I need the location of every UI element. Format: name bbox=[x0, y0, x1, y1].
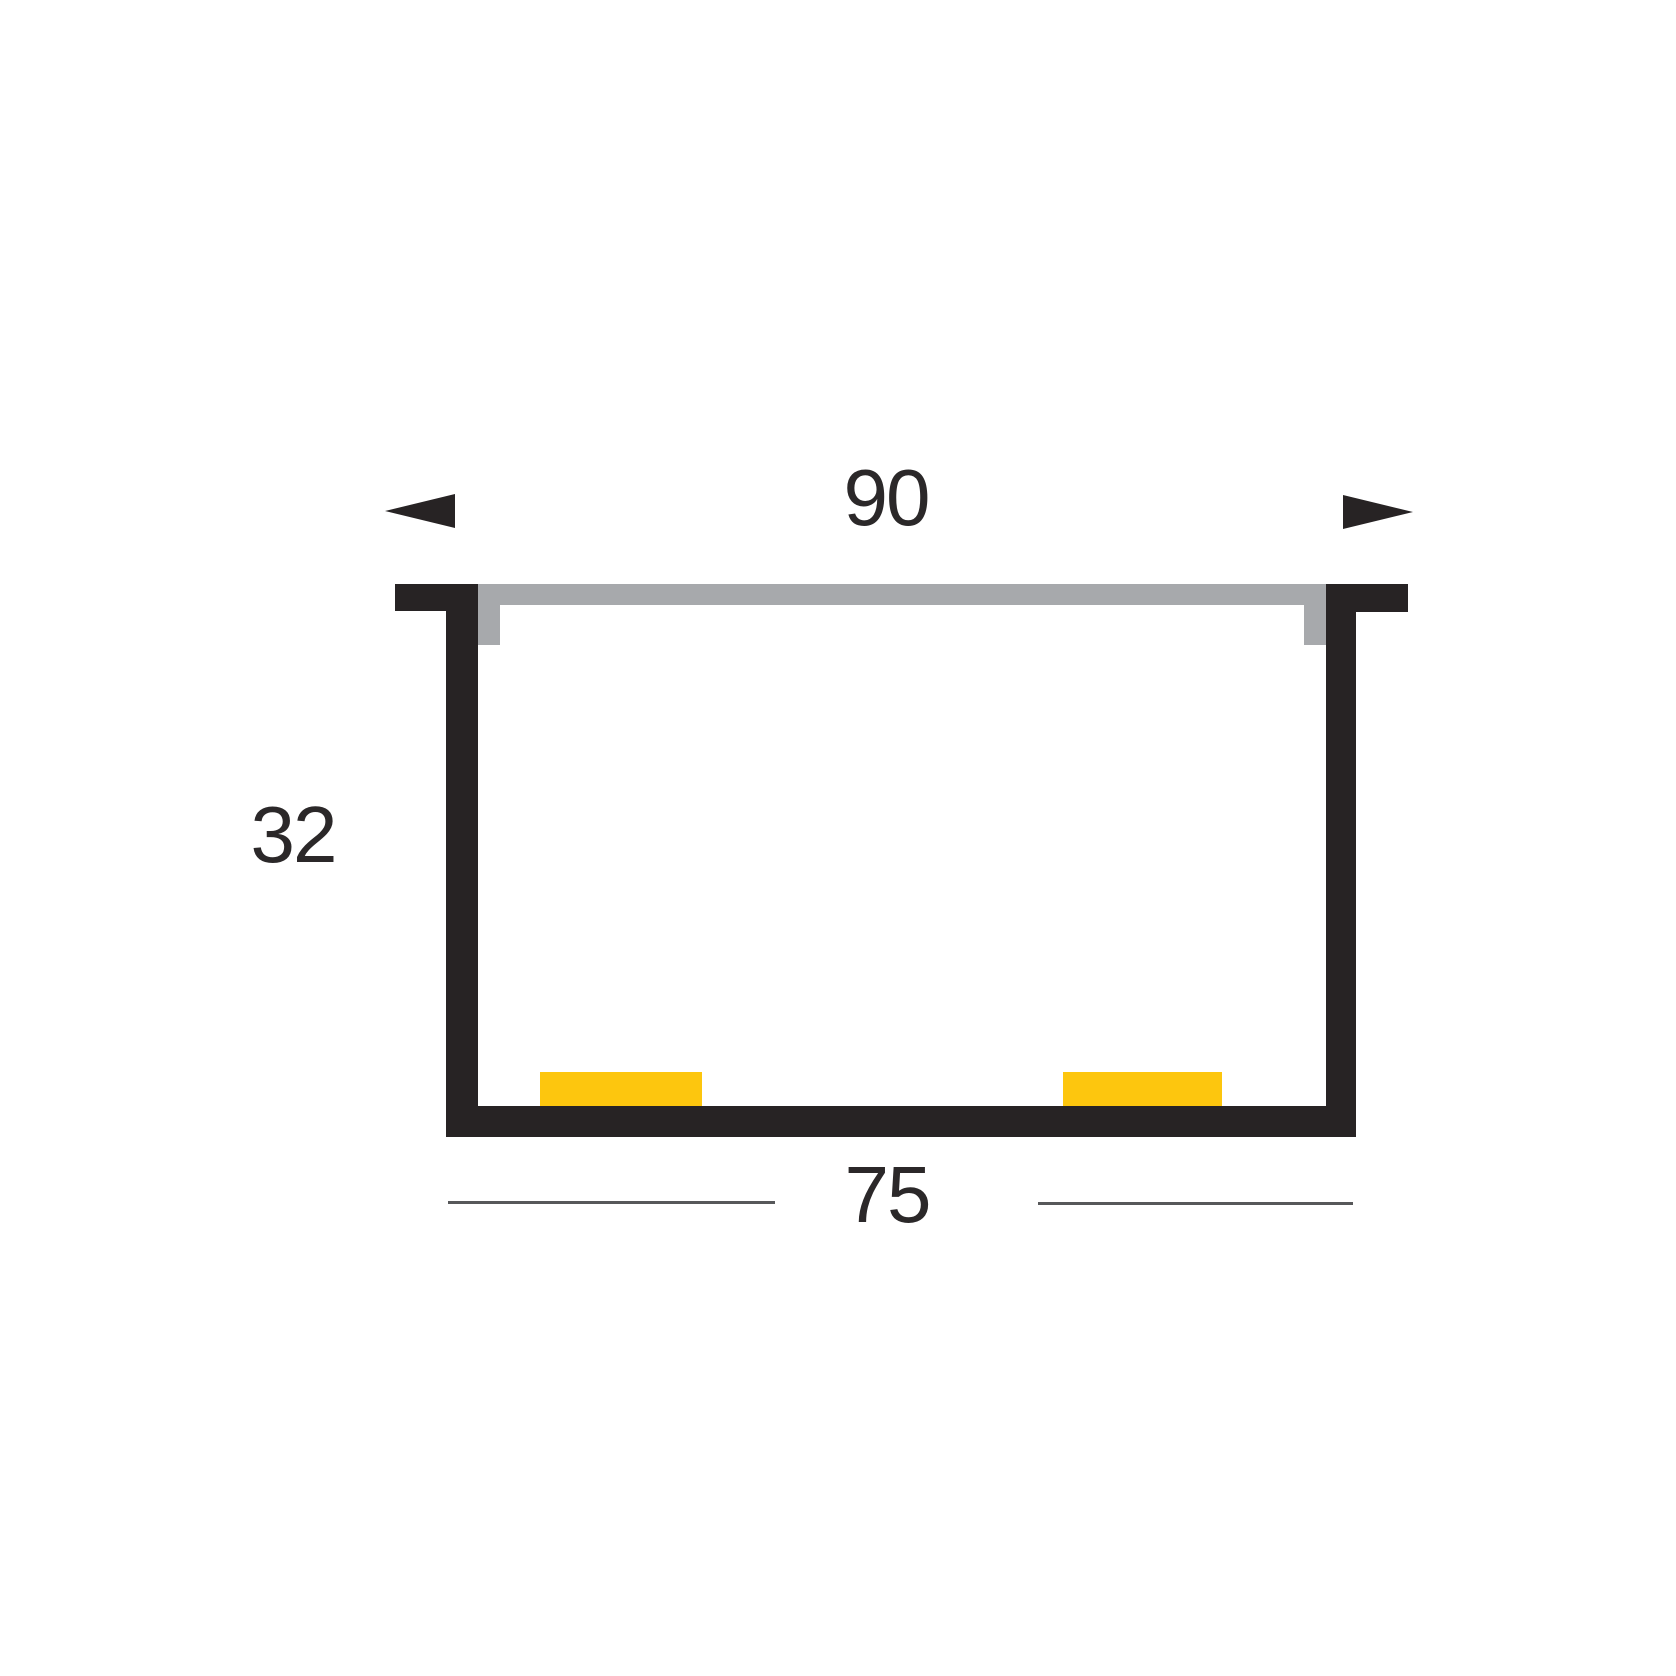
profile-cross-section-diagram: 90 32 75 bbox=[0, 0, 1676, 1676]
profile-base bbox=[446, 1106, 1356, 1137]
led-strip-right bbox=[1063, 1072, 1222, 1106]
dimension-arrowhead-right-icon bbox=[1343, 495, 1413, 529]
cover-plate bbox=[478, 584, 1326, 605]
dimension-label-outer-width: 90 bbox=[766, 458, 1006, 538]
profile-side-wall-right bbox=[1326, 584, 1356, 1137]
dimension-arrowhead-left-icon bbox=[385, 494, 455, 528]
dimension-label-height: 32 bbox=[173, 795, 413, 875]
cover-clip-left bbox=[478, 584, 500, 645]
led-strip-left bbox=[540, 1072, 702, 1106]
dimension-line-inner-width-right bbox=[1038, 1202, 1353, 1205]
dimension-line-inner-width-left bbox=[448, 1201, 775, 1204]
dimension-label-inner-width: 75 bbox=[767, 1155, 1007, 1235]
cover-clip-right bbox=[1304, 584, 1326, 645]
profile-side-wall-left bbox=[446, 584, 478, 1137]
